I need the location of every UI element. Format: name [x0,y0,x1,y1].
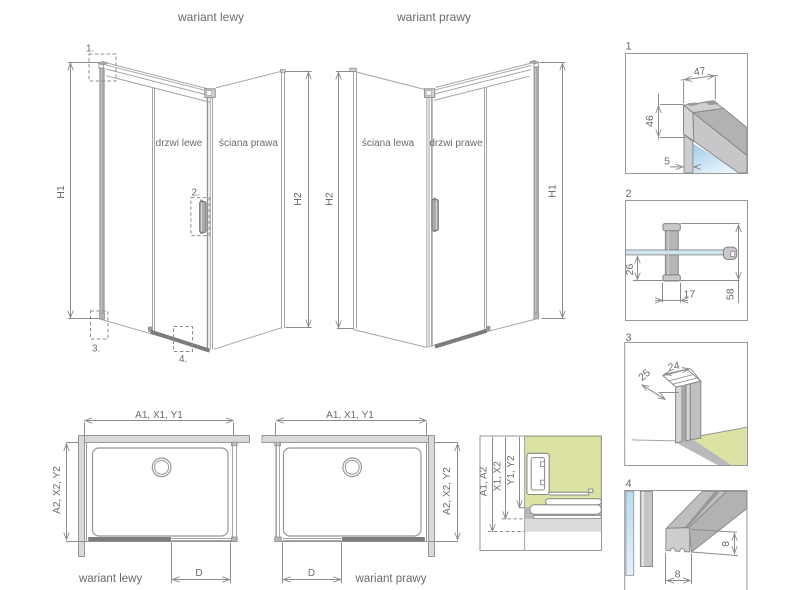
svg-text:4: 4 [626,478,632,490]
svg-text:A1, X1, Y1: A1, X1, Y1 [326,410,374,421]
svg-text:wariant prawy: wariant prawy [396,10,471,24]
svg-text:ściana prawa: ściana prawa [219,138,278,149]
svg-text:2: 2 [626,188,632,200]
svg-text:1.: 1. [86,44,94,55]
svg-text:A1, A2: A1, A2 [478,466,489,496]
svg-text:A2, X2, Y2: A2, X2, Y2 [442,467,453,515]
svg-text:17: 17 [684,289,696,301]
svg-text:3.: 3. [92,344,100,355]
svg-text:D: D [195,568,202,579]
svg-text:58: 58 [725,288,737,300]
svg-text:ściana lewa: ściana lewa [362,138,415,149]
svg-text:4.: 4. [179,354,187,365]
svg-text:8: 8 [675,569,681,581]
svg-text:8: 8 [720,541,732,547]
svg-text:Y1, Y2: Y1, Y2 [506,455,517,485]
svg-text:5: 5 [664,156,670,168]
svg-text:2.: 2. [192,188,200,199]
svg-text:wariant lewy: wariant lewy [78,573,143,585]
svg-text:wariant lewy: wariant lewy [177,10,244,24]
svg-text:D: D [308,568,315,579]
svg-text:H1: H1 [55,185,67,199]
svg-text:H1: H1 [547,184,559,198]
svg-text:46: 46 [644,115,656,127]
svg-text:26: 26 [624,264,636,276]
svg-text:drzwi lewe: drzwi lewe [156,138,203,149]
svg-text:A2, X2, Y2: A2, X2, Y2 [52,466,63,514]
svg-text:H2: H2 [292,192,304,206]
svg-text:A1, X1, Y1: A1, X1, Y1 [135,410,183,421]
svg-text:1: 1 [626,41,632,53]
svg-text:47: 47 [693,65,706,78]
svg-text:H2: H2 [324,192,336,206]
svg-text:X1, X2: X1, X2 [493,461,504,491]
svg-text:drzwi prawe: drzwi prawe [429,138,483,149]
svg-text:wariant prawy: wariant prawy [355,573,427,585]
